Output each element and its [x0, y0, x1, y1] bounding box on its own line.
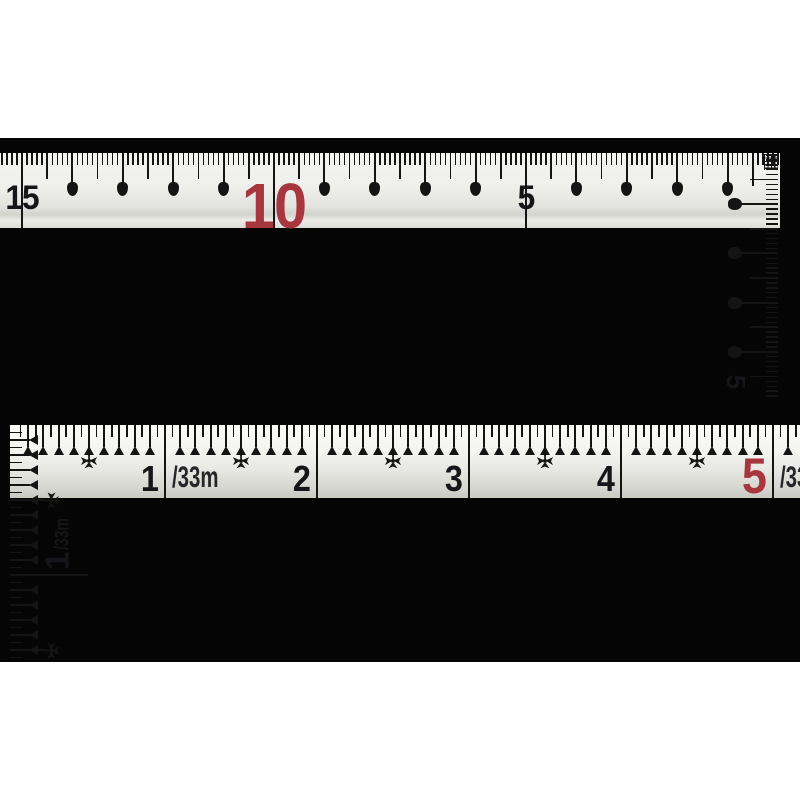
mm-tick	[766, 390, 778, 391]
blade-unit-number: 4	[597, 461, 614, 497]
crow-foot-mark	[232, 454, 250, 469]
sub-tick-flare	[99, 446, 109, 455]
half-sub-tick	[719, 425, 721, 437]
mm-tick	[697, 153, 698, 165]
sub-tick-stem	[255, 425, 257, 447]
mm-tick	[193, 153, 194, 165]
half-sub-tick	[552, 425, 554, 437]
sub-tick-stem	[666, 425, 668, 447]
mm-tick	[404, 153, 405, 165]
blade-unit-number: 5	[742, 451, 766, 498]
sub-tick-stem	[438, 425, 440, 447]
sub-tick-flare	[175, 446, 185, 455]
mm-tick	[82, 153, 83, 165]
cm-tick-teardrop	[728, 346, 742, 358]
mm-tick	[490, 153, 491, 165]
sub-tick-stem	[407, 425, 409, 447]
bottom-arm-unit-label: 1 /33m	[41, 504, 74, 570]
mm-tick	[766, 263, 778, 264]
sub-tick-stem	[10, 469, 30, 471]
half-sub-tick	[643, 425, 645, 437]
mm-tick	[766, 238, 778, 239]
mm-tick	[666, 153, 667, 165]
half-sub-tick	[10, 657, 22, 659]
half-sub-tick	[126, 425, 128, 437]
half-sub-tick	[10, 552, 22, 554]
mm-tick	[766, 272, 778, 273]
mm-tick	[460, 153, 461, 165]
sub-tick-flare	[29, 510, 38, 520]
blade-unit-number: 3	[445, 461, 462, 497]
mm-tick	[329, 153, 330, 165]
mm-tick	[394, 153, 395, 165]
mm-tick	[766, 287, 778, 288]
bottom-ruler-blade: 12345/33m/33m	[10, 425, 800, 498]
sub-tick-flare	[266, 446, 276, 455]
sub-tick-flare	[677, 446, 687, 455]
mm-tick	[766, 366, 778, 367]
mm-tick	[314, 153, 315, 165]
mm-tick	[188, 153, 189, 165]
mm-tick	[766, 267, 778, 268]
half-sub-tick	[734, 425, 736, 437]
sub-tick-flare	[29, 630, 38, 640]
half-sub-tick	[202, 425, 204, 437]
mm-tick	[11, 153, 12, 165]
sub-tick-flare	[494, 446, 504, 455]
mm-tick	[36, 153, 37, 165]
cm-tick-stem	[736, 351, 778, 353]
mm-tick	[766, 341, 778, 342]
blade-unit-number: 2	[293, 461, 310, 497]
half-sub-tick	[415, 425, 417, 437]
unit-suffix-label: /33m	[172, 463, 219, 493]
sub-tick-stem	[301, 425, 303, 447]
mm-tick	[87, 153, 88, 165]
mm-tick	[440, 153, 441, 165]
half-sub-tick	[765, 425, 767, 437]
sub-tick-flare	[29, 525, 38, 535]
mm-tick	[766, 336, 778, 337]
mm-tick	[505, 153, 506, 165]
crow-foot-mark	[43, 643, 61, 658]
sub-tick-stem	[10, 604, 30, 606]
mm-tick	[435, 153, 436, 165]
mm-tick	[566, 153, 567, 165]
sub-tick-flare	[570, 446, 580, 455]
sub-tick-stem	[10, 529, 30, 531]
sub-tick-flare	[601, 446, 611, 455]
mm-tick	[766, 248, 778, 249]
sub-tick-flare	[29, 615, 38, 625]
mm-tick	[359, 153, 360, 165]
half-sub-tick	[248, 425, 250, 437]
mm-tick	[92, 153, 93, 165]
mm-tick	[409, 153, 410, 165]
mm-tick	[278, 153, 279, 165]
crow-foot-mark	[688, 454, 706, 469]
blade-cm-number: 5	[518, 181, 535, 215]
mm-tick	[253, 153, 254, 165]
sub-tick-stem	[10, 454, 30, 456]
sub-tick-flare	[145, 446, 155, 455]
sub-tick-stem	[103, 425, 105, 447]
mm-tick	[766, 322, 778, 323]
mm-tick	[304, 153, 305, 165]
cm-tick-teardrop	[420, 182, 431, 196]
sub-tick-stem	[134, 425, 136, 447]
sub-tick-stem	[149, 425, 151, 447]
half-sub-tick	[339, 425, 341, 437]
half-sub-tick	[10, 612, 22, 614]
mm-tick	[41, 153, 42, 165]
mm-tick	[167, 153, 168, 165]
sub-tick-flare	[449, 446, 459, 455]
half-sub-tick	[658, 425, 660, 437]
mm-tick	[661, 153, 662, 165]
half-sub-tick	[10, 537, 22, 539]
unit-line	[772, 425, 774, 498]
page-canvas: 15105 5 12345/33m/33m 1 /33m	[0, 0, 800, 800]
cm-tick-teardrop	[117, 182, 128, 196]
half-sub-tick	[780, 425, 782, 437]
half-sub-tick	[141, 425, 143, 437]
sub-tick-stem	[270, 425, 272, 447]
sub-tick-flare	[29, 465, 38, 475]
sub-tick-flare	[190, 446, 200, 455]
half-sub-tick	[10, 642, 22, 644]
sub-tick-flare	[525, 446, 535, 455]
cm-tick-teardrop	[319, 182, 330, 196]
mm-tick	[766, 386, 778, 387]
mm-tick	[107, 153, 108, 165]
half-sub-tick	[278, 425, 280, 437]
mm-tick	[152, 153, 153, 165]
mm-tick	[591, 153, 592, 165]
blade-cm-number: 10	[242, 174, 306, 238]
sub-tick-stem	[377, 425, 379, 447]
half-sub-tick	[613, 425, 615, 437]
half-cm-tick	[450, 153, 452, 179]
mm-tick	[57, 153, 58, 165]
mm-tick	[465, 153, 466, 165]
mm-tick	[445, 153, 446, 165]
mm-tick	[530, 153, 531, 165]
mm-tick	[515, 153, 516, 165]
mm-tick	[485, 153, 486, 165]
sub-tick-flare	[114, 446, 124, 455]
mm-tick	[616, 153, 617, 165]
mm-tick	[766, 154, 778, 155]
mm-tick	[510, 153, 511, 165]
sub-tick-stem	[10, 619, 30, 621]
mm-tick	[596, 153, 597, 165]
cm-tick-teardrop	[728, 198, 742, 210]
sub-tick-stem	[331, 425, 333, 447]
mm-tick	[766, 331, 778, 332]
cm-tick-teardrop	[369, 182, 380, 196]
mm-tick	[611, 153, 612, 165]
half-sub-tick	[385, 425, 387, 437]
half-sub-tick	[749, 425, 751, 437]
sub-tick-flare	[130, 446, 140, 455]
cm-tick-teardrop	[728, 247, 742, 259]
mm-tick	[766, 184, 778, 185]
half-sub-tick	[10, 432, 22, 434]
sub-tick-stem	[10, 514, 30, 516]
mm-tick	[293, 153, 294, 165]
sub-tick-flare	[434, 446, 444, 455]
mm-tick	[586, 153, 587, 165]
bottom-arm-unit-suffix: /33m	[53, 518, 73, 550]
mm-tick	[470, 153, 471, 165]
sub-tick-stem	[590, 425, 592, 447]
half-sub-tick	[400, 425, 402, 437]
mm-tick	[1, 153, 2, 165]
mm-tick	[16, 153, 17, 165]
crow-stem	[696, 425, 698, 456]
mm-tick	[766, 164, 778, 165]
half-sub-tick	[461, 425, 463, 437]
sub-tick-stem	[742, 425, 744, 447]
half-sub-tick	[369, 425, 371, 437]
half-cm-tick	[750, 376, 778, 378]
mm-tick	[682, 153, 683, 165]
half-cm-tick	[601, 153, 603, 179]
half-sub-tick	[10, 627, 22, 629]
sub-tick-flare	[29, 600, 38, 610]
sub-tick-stem	[529, 425, 531, 447]
mm-tick	[228, 153, 229, 165]
sub-tick-stem	[605, 425, 607, 447]
crow-stem	[544, 425, 546, 456]
mm-tick	[319, 153, 320, 165]
sub-tick-flare	[646, 446, 656, 455]
top-ruler-arm: 5	[703, 153, 778, 400]
mm-tick	[142, 153, 143, 165]
mm-tick	[31, 153, 32, 165]
mm-tick	[766, 223, 778, 224]
crow-stem	[240, 425, 242, 456]
half-sub-tick	[187, 425, 189, 437]
cm-tick-teardrop	[672, 182, 683, 196]
cm-tick-teardrop	[571, 182, 582, 196]
cm-tick-teardrop	[168, 182, 179, 196]
sub-tick-flare	[707, 446, 717, 455]
unit-line	[468, 425, 470, 498]
mm-tick	[480, 153, 481, 165]
mm-tick	[535, 153, 536, 165]
sub-tick-stem	[10, 544, 30, 546]
mm-tick	[766, 395, 778, 396]
sub-tick-flare	[29, 450, 38, 460]
half-sub-tick	[506, 425, 508, 437]
mm-tick	[766, 317, 778, 318]
bottom-ruler-arm: 1 /33m	[10, 425, 88, 662]
mm-tick	[132, 153, 133, 165]
mm-tick	[495, 153, 496, 165]
mm-tick	[455, 153, 456, 165]
mm-tick	[520, 153, 521, 165]
half-sub-tick	[217, 425, 219, 437]
sub-tick-stem	[514, 425, 516, 447]
mm-tick	[127, 153, 128, 165]
mm-tick	[364, 153, 365, 165]
unit-suffix-label: /33m	[780, 463, 800, 493]
half-sub-tick	[354, 425, 356, 437]
sub-tick-flare	[586, 446, 596, 455]
mm-tick	[62, 153, 63, 165]
mm-tick	[766, 282, 778, 283]
mm-tick	[766, 159, 778, 160]
mm-tick	[766, 174, 778, 175]
mm-tick	[6, 153, 7, 165]
product-photo: 15105 5 12345/33m/33m 1 /33m	[0, 138, 800, 662]
sub-tick-stem	[10, 439, 30, 441]
mm-tick	[102, 153, 103, 165]
half-sub-tick	[582, 425, 584, 437]
mm-tick	[157, 153, 158, 165]
sub-tick-stem	[210, 425, 212, 447]
sub-tick-stem	[711, 425, 713, 447]
mm-tick	[389, 153, 390, 165]
mm-tick	[414, 153, 415, 165]
cm-tick-stem	[736, 203, 778, 205]
top-arm-end-number: 5	[723, 375, 749, 389]
mm-tick	[283, 153, 284, 165]
mm-tick	[384, 153, 385, 165]
sub-tick-stem	[10, 634, 30, 636]
mm-tick	[641, 153, 642, 165]
mm-tick	[621, 153, 622, 165]
mm-tick	[766, 258, 778, 259]
crow-stem	[10, 499, 46, 501]
mm-tick	[766, 371, 778, 372]
sub-tick-flare	[662, 446, 672, 455]
mm-tick	[766, 169, 778, 170]
top-ruler-blade: 15105	[0, 153, 780, 228]
mm-tick	[369, 153, 370, 165]
half-sub-tick	[157, 425, 159, 437]
bottom-arm-unit-number: 1	[41, 552, 74, 570]
half-sub-tick	[111, 425, 113, 437]
corner-hatch-pattern	[764, 154, 778, 170]
sub-tick-flare	[282, 446, 292, 455]
half-sub-tick	[673, 425, 675, 437]
cm-tick-teardrop	[728, 297, 742, 309]
sub-tick-flare	[297, 446, 307, 455]
mm-tick	[766, 218, 778, 219]
mm-tick	[430, 153, 431, 165]
mm-tick	[766, 361, 778, 362]
sub-tick-stem	[453, 425, 455, 447]
sub-tick-flare	[783, 446, 793, 455]
half-cm-tick	[399, 153, 401, 179]
sub-tick-stem	[726, 425, 728, 447]
mm-tick	[213, 153, 214, 165]
crow-foot-mark	[384, 454, 402, 469]
mm-tick	[419, 153, 420, 165]
mm-tick	[208, 153, 209, 165]
half-cm-tick	[198, 153, 200, 179]
sub-tick-flare	[418, 446, 428, 455]
half-sub-tick	[597, 425, 599, 437]
mm-tick	[354, 153, 355, 165]
mm-tick	[636, 153, 637, 165]
half-cm-tick	[651, 153, 653, 179]
mm-tick	[183, 153, 184, 165]
sub-tick-flare	[29, 435, 38, 445]
half-sub-tick	[628, 425, 630, 437]
mm-tick	[334, 153, 335, 165]
half-cm-tick	[46, 153, 48, 179]
mm-tick	[233, 153, 234, 165]
sub-tick-flare	[479, 446, 489, 455]
half-sub-tick	[172, 425, 174, 437]
unit-line	[620, 425, 622, 498]
half-sub-tick	[263, 425, 265, 437]
mm-tick	[339, 153, 340, 165]
sub-tick-stem	[635, 425, 637, 447]
half-cm-tick	[500, 153, 502, 179]
sub-tick-flare	[358, 446, 368, 455]
half-cm-tick	[750, 277, 778, 279]
half-cm-tick	[750, 179, 778, 181]
sub-tick-flare	[510, 446, 520, 455]
mm-tick	[243, 153, 244, 165]
sub-tick-stem	[194, 425, 196, 447]
sub-tick-flare	[29, 585, 38, 595]
half-sub-tick	[521, 425, 523, 437]
mm-tick	[268, 153, 269, 165]
mm-tick	[656, 153, 657, 165]
half-sub-tick	[10, 477, 22, 479]
mm-tick	[606, 153, 607, 165]
half-sub-tick	[795, 425, 797, 437]
sub-tick-stem	[650, 425, 652, 447]
mm-tick	[571, 153, 572, 165]
crow-foot-mark	[536, 454, 554, 469]
half-sub-tick	[324, 425, 326, 437]
half-cm-tick	[750, 228, 778, 230]
mm-tick	[687, 153, 688, 165]
half-sub-tick	[309, 425, 311, 437]
sub-tick-flare	[206, 446, 216, 455]
half-sub-tick	[10, 582, 22, 584]
mm-tick	[766, 381, 778, 382]
mm-tick	[556, 153, 557, 165]
unit-line	[316, 425, 318, 498]
cm-tick-stem	[736, 252, 778, 254]
mm-tick	[545, 153, 546, 165]
half-sub-tick	[567, 425, 569, 437]
half-sub-tick	[445, 425, 447, 437]
crow-stem	[10, 649, 46, 651]
mm-tick	[52, 153, 53, 165]
mm-tick	[561, 153, 562, 165]
sub-tick-stem	[225, 425, 227, 447]
mm-tick	[117, 153, 118, 165]
mm-tick	[137, 153, 138, 165]
sub-tick-stem	[787, 425, 789, 447]
mm-tick	[766, 356, 778, 357]
half-sub-tick	[491, 425, 493, 437]
sub-tick-flare	[631, 446, 641, 455]
sub-tick-stem	[362, 425, 364, 447]
half-cm-cross	[752, 173, 754, 186]
cm-tick-teardrop	[621, 182, 632, 196]
mm-tick	[766, 194, 778, 195]
